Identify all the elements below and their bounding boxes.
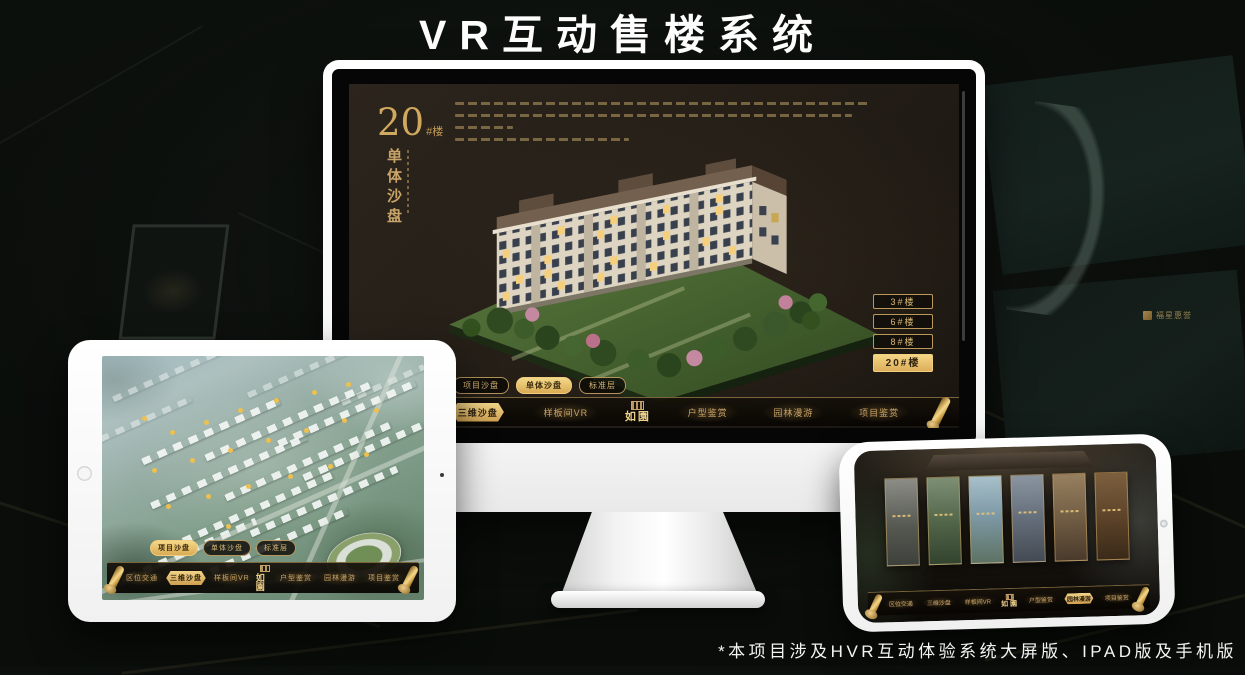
developer-logo-text: 福星惠誉 — [1156, 310, 1192, 321]
ipad-home-button — [77, 466, 92, 481]
nav-item-garden-roam[interactable]: 园林漫游 — [764, 403, 822, 422]
floor-button-6[interactable]: 6#楼 — [873, 314, 933, 329]
bg-river — [1006, 101, 1174, 328]
floor-button-column: 3#楼 6#楼 8#楼 20#楼 — [873, 294, 933, 377]
gallery-panel[interactable] — [968, 475, 1003, 564]
nav-item-floorplan[interactable]: 户型鉴赏 — [1025, 594, 1057, 606]
tab-project-sandtable[interactable]: 项目沙盘 — [453, 377, 509, 394]
floor-button-8[interactable]: 8#楼 — [873, 334, 933, 349]
nav-item-model-room-vr[interactable]: 样板间VR — [535, 403, 598, 422]
nav-item-project-gallery[interactable]: 项目鉴赏 — [850, 403, 908, 422]
nav-item-garden-roam[interactable]: 园林漫游 — [1063, 593, 1095, 605]
logo-text: 如園 — [625, 412, 651, 423]
monitor-sub-tabs: 项目沙盘 单体沙盘 标准层 — [453, 377, 626, 394]
page-title: VR互动售楼系统 — [0, 1, 1245, 61]
nav-item-location-transport[interactable]: 区位交通 — [885, 598, 917, 610]
nav-item-floorplan[interactable]: 户型鉴赏 — [274, 571, 318, 585]
nav-item-project-gallery[interactable]: 项目鉴赏 — [362, 571, 406, 585]
description-line — [455, 114, 852, 117]
monitor-stand-neck — [557, 512, 762, 595]
bg-picture-frame — [119, 224, 230, 339]
building-number-suffix: #楼 — [426, 126, 443, 138]
scroll-icon[interactable] — [1135, 585, 1150, 608]
nav-item-3d-sandtable[interactable]: 三维沙盘 — [164, 571, 208, 585]
seal-icon — [1006, 593, 1014, 599]
nav-item-model-room-vr[interactable]: 样板间VR — [208, 571, 256, 585]
nav-item-3d-sandtable[interactable]: 三维沙盘 — [923, 596, 955, 608]
description-paragraph — [455, 102, 869, 150]
nav-item-3d-sandtable[interactable]: 三维沙盘 — [449, 403, 507, 422]
building-number: 20 — [377, 101, 424, 144]
gallery-panel[interactable] — [884, 477, 919, 566]
ruyuan-logo: 如園 — [1001, 593, 1019, 607]
description-line — [455, 126, 513, 129]
tab-standard-floor[interactable]: 标准层 — [579, 377, 626, 394]
seal-icon — [260, 565, 270, 572]
smartphone: 区位交通 三维沙盘 样板间VR 如園 户型鉴赏 园林漫游 项目鉴赏 — [838, 433, 1175, 632]
scroll-icon[interactable] — [929, 396, 951, 428]
building-headline: 20#楼 — [377, 104, 443, 141]
footnote-text: *本项目涉及HVR互动体验系统大屏版、IPAD版及手机版 — [718, 637, 1237, 662]
floor-button-3[interactable]: 3#楼 — [873, 294, 933, 309]
tab-single-sandtable[interactable]: 单体沙盘 — [516, 377, 572, 394]
gallery-panel[interactable] — [1052, 473, 1087, 562]
ipad-camera — [440, 473, 444, 477]
ipad-main-nav: 区位交通 三维沙盘 样板间VR 如園 户型鉴赏 园林漫游 项目鉴赏 — [107, 562, 419, 593]
description-line — [455, 102, 869, 105]
nav-item-floorplan[interactable]: 户型鉴赏 — [679, 403, 737, 422]
nav-item-project-gallery[interactable]: 项目鉴赏 — [1101, 592, 1133, 604]
phone-camera — [1160, 520, 1168, 528]
developer-logo-icon — [1143, 311, 1152, 320]
nav-item-location-transport[interactable]: 区位交通 — [120, 571, 164, 585]
bg-picture-frame-inner — [133, 237, 214, 326]
logo-text: 如園 — [1001, 600, 1019, 607]
ipad-screen: 项目沙盘 单体沙盘 标准层 区位交通 三维沙盘 样板间VR 如園 户型鉴赏 园林… — [102, 356, 424, 600]
seal-icon — [631, 401, 644, 410]
nav-item-garden-roam[interactable]: 园林漫游 — [318, 571, 362, 585]
developer-logo: 福星惠誉 — [1143, 310, 1192, 321]
screen-reflection — [962, 91, 965, 341]
scroll-icon[interactable] — [868, 593, 883, 616]
gallery-panel[interactable] — [1094, 472, 1129, 561]
ruyuan-logo: 如園 — [625, 401, 651, 423]
logo-text: 如園 — [256, 574, 274, 592]
nav-item-model-room-vr[interactable]: 样板间VR — [961, 595, 996, 607]
ipad-tablet: 项目沙盘 单体沙盘 标准层 区位交通 三维沙盘 样板间VR 如園 户型鉴赏 园林… — [68, 340, 456, 622]
caption-deco-text — [407, 150, 409, 214]
monitor-stand-base — [551, 591, 765, 608]
tab-standard-floor[interactable]: 标准层 — [256, 540, 296, 556]
description-line — [455, 138, 629, 141]
floor-button-20[interactable]: 20#楼 — [873, 354, 933, 372]
gallery-panel[interactable] — [926, 476, 961, 565]
tab-project-sandtable[interactable]: 项目沙盘 — [150, 540, 198, 556]
phone-main-nav: 区位交通 三维沙盘 样板间VR 如園 户型鉴赏 园林漫游 项目鉴赏 — [868, 584, 1151, 616]
building-3d-model[interactable] — [441, 150, 887, 404]
building-number-badges — [142, 416, 147, 421]
scene-gallery — [854, 471, 1158, 567]
building-caption: 单体沙盘 — [383, 148, 404, 228]
gallery-panel[interactable] — [1010, 474, 1045, 563]
ceiling-beam — [924, 451, 1094, 472]
ipad-sub-tabs: 项目沙盘 单体沙盘 标准层 — [150, 540, 296, 556]
tab-single-sandtable[interactable]: 单体沙盘 — [203, 540, 251, 556]
ruyuan-logo: 如園 — [256, 565, 274, 592]
phone-screen: 区位交通 三维沙盘 样板间VR 如園 户型鉴赏 园林漫游 项目鉴赏 — [854, 443, 1161, 623]
